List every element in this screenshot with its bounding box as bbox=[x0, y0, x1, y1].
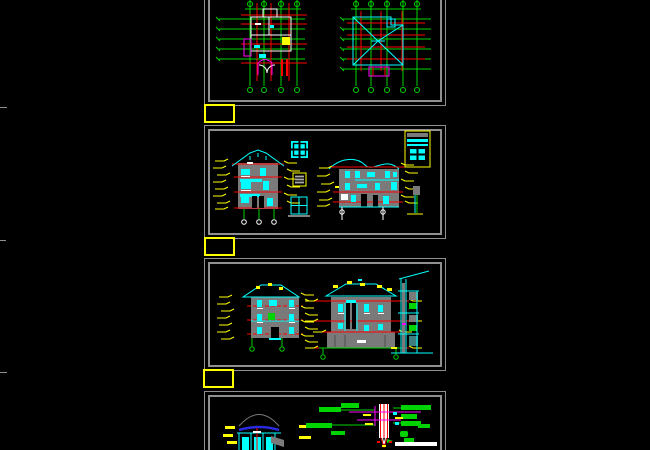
frame-speck bbox=[0, 107, 7, 108]
scale-bar bbox=[395, 442, 437, 446]
sheet-sections-canvas bbox=[205, 392, 445, 450]
axis-grid bbox=[340, 0, 431, 93]
sheet-tab-1[interactable] bbox=[204, 104, 235, 123]
sheet-plans[interactable] bbox=[204, 0, 446, 106]
sheet-elevations-b[interactable] bbox=[204, 258, 446, 371]
window-detail-outline[interactable] bbox=[288, 197, 310, 216]
sheet-elevations-a-canvas bbox=[205, 126, 445, 238]
floor-plan[interactable] bbox=[216, 0, 307, 93]
frame-speck bbox=[0, 240, 6, 241]
building-section[interactable] bbox=[223, 415, 311, 450]
stair-section[interactable] bbox=[391, 271, 433, 353]
pole-detail[interactable] bbox=[407, 186, 423, 214]
window-detail-solid[interactable] bbox=[291, 141, 308, 158]
roof-access-detail bbox=[369, 67, 389, 76]
grid-drops bbox=[242, 209, 277, 224]
rear-elevation[interactable] bbox=[317, 159, 418, 220]
dimension-lines bbox=[347, 11, 425, 71]
sheet-elevations-b-canvas bbox=[205, 259, 445, 370]
sheet-plans-canvas bbox=[205, 0, 445, 105]
highlight-room bbox=[282, 37, 290, 45]
wall-junction-detail[interactable] bbox=[306, 403, 431, 447]
frame-speck bbox=[0, 372, 7, 373]
roof-plan[interactable] bbox=[340, 0, 431, 93]
sheet-tab-2[interactable] bbox=[204, 237, 235, 256]
sheet-elevations-a[interactable] bbox=[204, 125, 446, 239]
wall-band-detail[interactable] bbox=[405, 131, 430, 167]
sheet-sections[interactable] bbox=[204, 391, 446, 450]
sheet-tab-3[interactable] bbox=[203, 369, 234, 388]
front-elevation[interactable] bbox=[213, 150, 300, 224]
side-elevation-a[interactable] bbox=[217, 283, 318, 351]
axis-grid bbox=[216, 0, 305, 93]
